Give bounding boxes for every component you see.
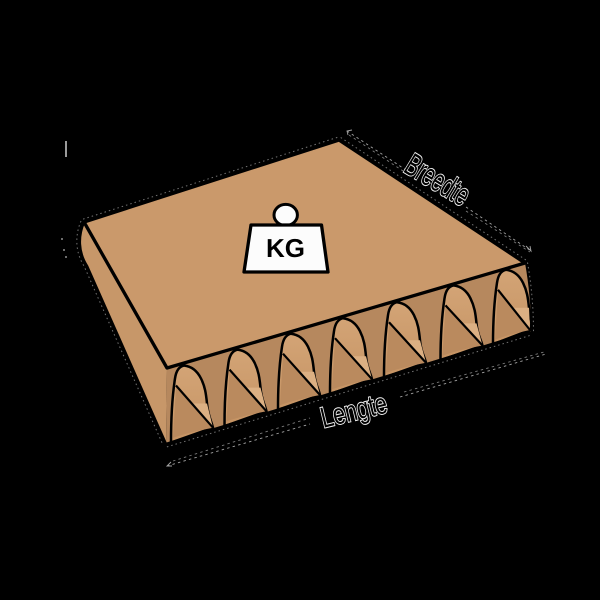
svg-text:KG: KG [266, 233, 305, 263]
